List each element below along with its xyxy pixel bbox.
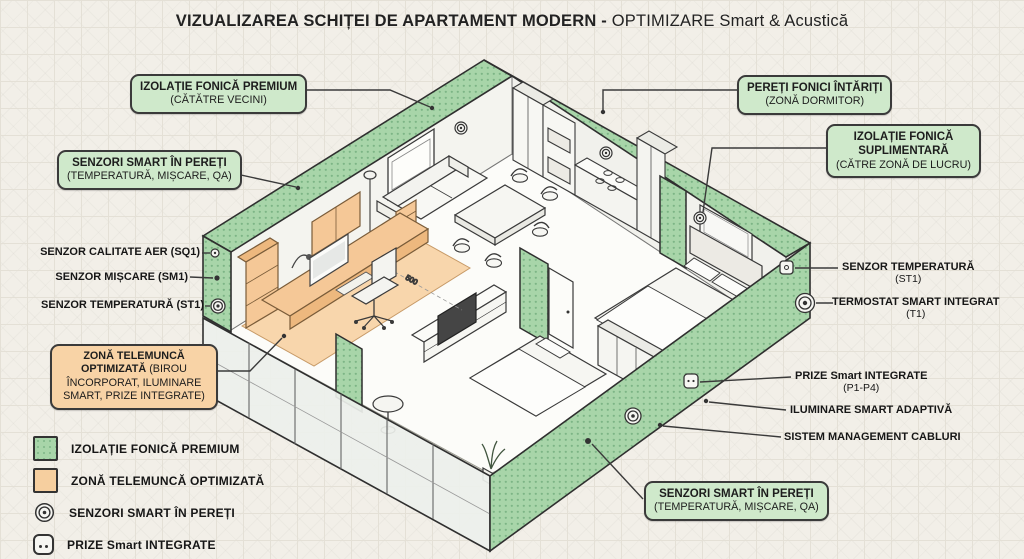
label-senzor-miscare: SENZOR MIȘCARE (SM1) [55, 271, 188, 283]
outlet-icon [780, 261, 793, 274]
orange-swatch [33, 468, 58, 493]
legend-item-prize: PRIZE Smart INTEGRATE [33, 532, 264, 557]
label-senzor-temperatura: SENZOR TEMPERATURĂ (ST1) [41, 299, 204, 311]
round-table [373, 396, 403, 412]
callout-line: (ZONĂ DORMITOR) [747, 95, 882, 108]
label-line: (T1) [832, 308, 999, 320]
outlet-icon [684, 374, 698, 388]
legend: IZOLAȚIE FONICĂ PREMIUM ZONĂ TELEMUNCĂ O… [33, 436, 264, 559]
callout-line: SENZORI SMART ÎN PEREȚI [67, 156, 232, 170]
apartment-visualization: VIZUALIZAREA SCHIȚEI DE APARTAMENT MODER… [0, 0, 1024, 559]
label-senzor-calitate-aer: SENZOR CALITATE AER (SQ1) [40, 246, 200, 258]
interior-door [549, 268, 573, 348]
callout-line: SENZORI SMART ÎN PEREȚI [654, 487, 819, 501]
label-prize-smart: PRIZE Smart INTEGRATE (P1-P4) [795, 370, 927, 394]
sensor-icon [694, 212, 706, 224]
callout-line: SUPLIMENTARĂ [836, 144, 971, 158]
callout-line: (CĂTĂTRE VECINI) [140, 94, 297, 107]
sensor-icon [585, 438, 591, 444]
sensor-icon [455, 122, 467, 134]
callout-senzori-smart-left: SENZORI SMART ÎN PEREȚI (TEMPERATURĂ, MI… [57, 150, 242, 190]
green-swatch [33, 436, 58, 461]
callout-pereti-fonici: PEREȚI FONICI ÎNTĂRIȚI (ZONĂ DORMITOR) [737, 75, 892, 115]
legend-label: SENZORI SMART ÎN PEREȚI [69, 506, 235, 520]
callout-line: (TEMPERATURĂ, MIȘCARE, QA) [654, 501, 819, 514]
callout-line: IZOLAȚIE FONICĂ PREMIUM [140, 80, 297, 94]
label-line: TERMOSTAT SMART INTEGRAT [832, 296, 999, 308]
callout-line: (CĂTRE ZONĂ DE LUCRU) [836, 159, 971, 172]
label-line: SENZOR TEMPERATURĂ [842, 261, 974, 273]
outlet-icon [33, 534, 54, 555]
label-termostat-smart: TERMOSTAT SMART INTEGRAT (T1) [832, 296, 999, 320]
legend-label: PRIZE Smart INTEGRATE [67, 538, 216, 552]
label-iluminare-smart: ILUMINARE SMART ADAPTIVĂ [790, 404, 952, 416]
legend-item-telemunca: ZONĂ TELEMUNCĂ OPTIMIZATĂ [33, 468, 264, 493]
legend-item-izolatie: IZOLAȚIE FONICĂ PREMIUM [33, 436, 264, 461]
callout-zona-telemunca: ZONĂ TELEMUNCĂ OPTIMIZATĂ (BIROU ÎNCORPO… [50, 344, 218, 410]
sensor-icon [600, 147, 612, 159]
sensor-icon [214, 275, 219, 280]
callout-izolatie-suplimentara: IZOLAȚIE FONICĂ SUPLIMENTARĂ (CĂTRE ZONĂ… [826, 124, 981, 178]
label-line: (ST1) [842, 273, 974, 285]
label-line: PRIZE Smart INTEGRATE [795, 370, 927, 382]
floor-lamp [364, 171, 376, 179]
legend-label: IZOLAȚIE FONICĂ PREMIUM [71, 442, 240, 456]
hall-partition [520, 248, 548, 344]
label-line: (P1-P4) [795, 382, 927, 394]
thermostat-icon [796, 294, 815, 313]
label-sistem-cabluri: SISTEM MANAGEMENT CABLURI [784, 431, 961, 443]
callout-line: (TEMPERATURĂ, MIȘCARE, QA) [67, 170, 232, 183]
sensor-icon [211, 249, 219, 257]
callout-line: IZOLAȚIE FONICĂ [836, 130, 971, 144]
sensor-icon [211, 299, 225, 313]
callout-line: PEREȚI FONICI ÎNTĂRIȚI [747, 81, 882, 95]
callout-izolatie-fonica-premium: IZOLAȚIE FONICĂ PREMIUM (CĂTĂTRE VECINI) [130, 74, 307, 114]
legend-item-senzori: SENZORI SMART ÎN PEREȚI [33, 500, 264, 525]
sensor-icon [33, 501, 56, 524]
sensor-icon [625, 408, 641, 424]
callout-senzori-smart-bottom: SENZORI SMART ÎN PEREȚI (TEMPERATURĂ, MI… [644, 481, 829, 521]
legend-label: ZONĂ TELEMUNCĂ OPTIMIZATĂ [71, 474, 264, 488]
bedroom-partition [660, 176, 686, 268]
label-senzor-temperatura-right: SENZOR TEMPERATURĂ (ST1) [842, 261, 974, 285]
